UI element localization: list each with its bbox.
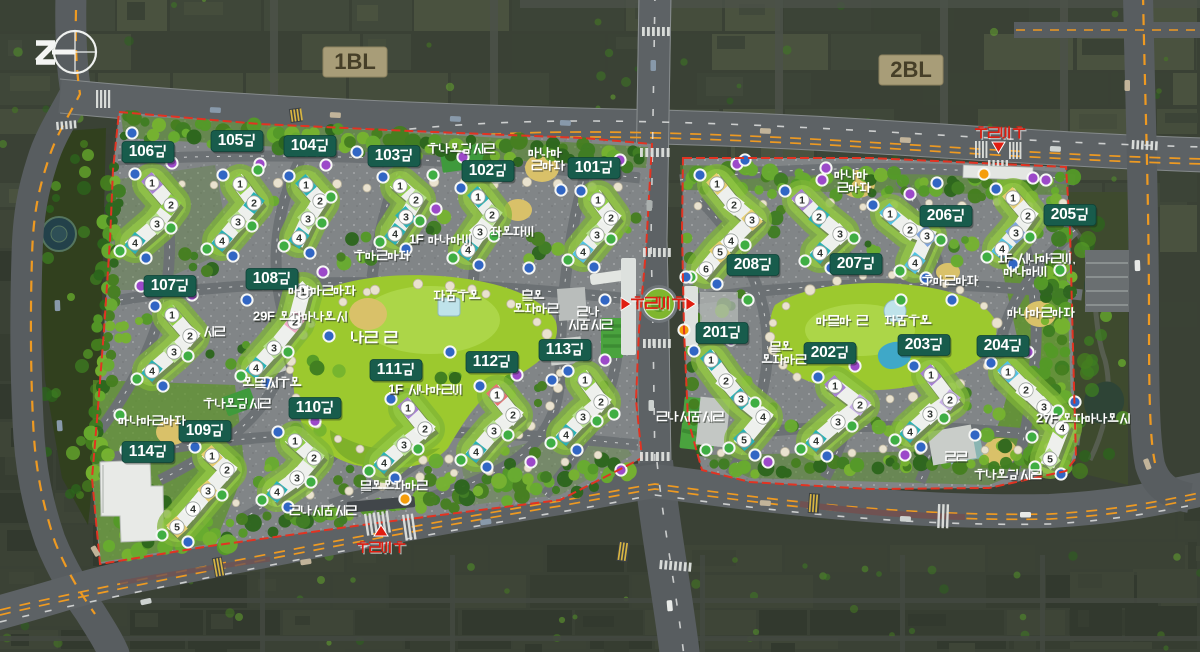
svg-text:2: 2 xyxy=(422,424,428,436)
svg-text:0: 0 xyxy=(383,147,392,164)
svg-text:6: 6 xyxy=(943,207,952,224)
svg-text:3: 3 xyxy=(294,473,300,485)
svg-text:0: 0 xyxy=(194,422,203,439)
svg-text:3: 3 xyxy=(738,394,744,406)
svg-text:3: 3 xyxy=(305,214,311,226)
svg-text:0: 0 xyxy=(1059,206,1068,223)
svg-text:2: 2 xyxy=(811,344,820,361)
svg-text:0: 0 xyxy=(845,255,854,272)
svg-text:1: 1 xyxy=(928,370,934,382)
svg-text:2: 2 xyxy=(413,195,419,207)
svg-text:3: 3 xyxy=(835,417,841,429)
svg-text:4: 4 xyxy=(760,412,766,424)
svg-text:1: 1 xyxy=(292,436,298,448)
svg-text:2: 2 xyxy=(984,337,993,354)
svg-text:1: 1 xyxy=(397,181,403,193)
svg-text:2: 2 xyxy=(837,255,846,272)
svg-text:2: 2 xyxy=(251,198,257,210)
svg-text:0: 0 xyxy=(137,143,146,160)
svg-text:0: 0 xyxy=(819,344,828,361)
svg-text:4: 4 xyxy=(813,436,819,448)
svg-text:1: 1 xyxy=(591,159,600,176)
svg-text:F: F xyxy=(416,232,424,247)
svg-text:4: 4 xyxy=(274,487,280,499)
svg-text:1: 1 xyxy=(832,381,838,393)
svg-text:5: 5 xyxy=(717,247,723,259)
svg-text:0: 0 xyxy=(935,207,944,224)
svg-text:4: 4 xyxy=(149,366,155,378)
svg-text:8: 8 xyxy=(750,256,759,273)
svg-text:2: 2 xyxy=(947,395,953,407)
svg-text:0: 0 xyxy=(583,159,592,176)
svg-text:1: 1 xyxy=(237,179,243,191)
svg-text:2: 2 xyxy=(489,210,495,222)
svg-text:1: 1 xyxy=(149,178,155,190)
svg-text:1: 1 xyxy=(475,192,481,204)
svg-text:4: 4 xyxy=(190,504,196,516)
svg-text:0: 0 xyxy=(226,132,235,149)
svg-text:8: 8 xyxy=(269,270,278,287)
svg-text:4: 4 xyxy=(307,137,316,154)
svg-text:2: 2 xyxy=(1023,385,1029,397)
svg-text:1: 1 xyxy=(303,180,309,192)
svg-text:6: 6 xyxy=(145,143,154,160)
svg-text:3: 3 xyxy=(921,336,930,353)
svg-text:3: 3 xyxy=(477,227,483,239)
svg-text:6: 6 xyxy=(703,264,709,276)
svg-text:0: 0 xyxy=(299,137,308,154)
svg-text:4: 4 xyxy=(817,248,823,260)
svg-text:0: 0 xyxy=(711,324,720,341)
svg-text:2BL: 2BL xyxy=(890,57,932,82)
svg-text:3: 3 xyxy=(391,147,400,164)
svg-text:1: 1 xyxy=(887,209,893,221)
svg-text:2: 2 xyxy=(485,162,494,179)
svg-text:2: 2 xyxy=(723,376,729,388)
svg-text:1: 1 xyxy=(209,451,215,463)
svg-text:3: 3 xyxy=(837,229,843,241)
svg-text:1: 1 xyxy=(714,179,720,191)
svg-text:2: 2 xyxy=(827,344,836,361)
svg-text:3: 3 xyxy=(580,412,586,424)
svg-text:3: 3 xyxy=(171,347,177,359)
svg-text:4: 4 xyxy=(392,229,398,241)
svg-text:1: 1 xyxy=(799,195,805,207)
svg-text:2: 2 xyxy=(907,225,913,237)
svg-text:1: 1 xyxy=(582,375,588,387)
svg-text:3: 3 xyxy=(594,230,600,242)
svg-text:2: 2 xyxy=(311,453,317,465)
svg-text:2: 2 xyxy=(1025,211,1031,223)
svg-text:2: 2 xyxy=(703,324,712,341)
svg-text:5: 5 xyxy=(174,522,180,534)
svg-text:2: 2 xyxy=(510,410,516,422)
svg-text:4: 4 xyxy=(253,363,259,375)
svg-text:0: 0 xyxy=(477,162,486,179)
svg-text:3: 3 xyxy=(562,341,571,358)
svg-text:4: 4 xyxy=(145,443,154,460)
svg-text:3: 3 xyxy=(1013,228,1019,240)
svg-text:2: 2 xyxy=(734,256,743,273)
svg-text:4: 4 xyxy=(132,238,138,250)
svg-text:3: 3 xyxy=(924,231,930,243)
svg-text:0: 0 xyxy=(312,399,321,416)
svg-text:5: 5 xyxy=(1067,206,1076,223)
svg-text:2: 2 xyxy=(816,212,822,224)
svg-text:4: 4 xyxy=(563,430,569,442)
svg-text:3: 3 xyxy=(491,426,497,438)
svg-text:1: 1 xyxy=(719,324,728,341)
svg-text:0: 0 xyxy=(742,256,751,273)
svg-text:4: 4 xyxy=(728,236,734,248)
svg-text:4: 4 xyxy=(219,236,225,248)
svg-text:F: F xyxy=(395,382,403,397)
svg-text:2: 2 xyxy=(168,200,174,212)
svg-text:7: 7 xyxy=(167,277,176,294)
svg-text:1: 1 xyxy=(1005,367,1011,379)
svg-text:5: 5 xyxy=(1047,454,1053,466)
svg-text:0: 0 xyxy=(261,270,270,287)
svg-text:7: 7 xyxy=(853,255,862,272)
svg-text:1: 1 xyxy=(393,361,402,378)
svg-text:2: 2 xyxy=(489,353,498,370)
svg-text:F: F xyxy=(1050,411,1058,426)
svg-text:1: 1 xyxy=(405,403,411,415)
svg-text:9: 9 xyxy=(202,422,211,439)
svg-text:4: 4 xyxy=(907,427,913,439)
svg-text:5: 5 xyxy=(741,435,747,447)
svg-text:2: 2 xyxy=(317,196,323,208)
svg-text:1: 1 xyxy=(708,355,714,367)
svg-text:5: 5 xyxy=(234,132,243,149)
svg-text:3: 3 xyxy=(154,219,160,231)
svg-text:2: 2 xyxy=(927,207,936,224)
svg-text:2: 2 xyxy=(608,213,614,225)
svg-text:2: 2 xyxy=(187,331,193,343)
svg-text:4: 4 xyxy=(473,447,479,459)
svg-text:4: 4 xyxy=(580,247,586,259)
svg-text:3: 3 xyxy=(205,486,211,498)
svg-text:0: 0 xyxy=(159,277,168,294)
svg-text:1: 1 xyxy=(1010,193,1016,205)
svg-text:1: 1 xyxy=(169,310,175,322)
svg-text:3: 3 xyxy=(403,212,409,224)
svg-text:1BL: 1BL xyxy=(334,49,376,74)
svg-text:2: 2 xyxy=(224,465,230,477)
svg-text:3: 3 xyxy=(271,343,277,355)
svg-text:4: 4 xyxy=(1000,337,1009,354)
svg-text:2: 2 xyxy=(598,397,604,409)
svg-text:0: 0 xyxy=(913,336,922,353)
svg-text:F: F xyxy=(1004,251,1012,266)
svg-text:3: 3 xyxy=(235,217,241,229)
svg-text:2: 2 xyxy=(857,400,863,412)
svg-text:1: 1 xyxy=(494,390,500,402)
svg-text:4: 4 xyxy=(296,233,302,245)
svg-text:4: 4 xyxy=(1059,423,1065,435)
svg-text:2: 2 xyxy=(905,336,914,353)
svg-text:1: 1 xyxy=(595,195,601,207)
svg-text:0: 0 xyxy=(992,337,1001,354)
svg-text:3: 3 xyxy=(401,440,407,452)
svg-text:2: 2 xyxy=(1051,206,1060,223)
svg-text:4: 4 xyxy=(912,258,918,270)
svg-text:4: 4 xyxy=(465,245,471,257)
svg-text:F: F xyxy=(267,309,275,324)
svg-text:3: 3 xyxy=(927,409,933,421)
svg-text:3: 3 xyxy=(749,215,755,227)
svg-text:4: 4 xyxy=(381,458,387,470)
svg-text:2: 2 xyxy=(731,200,737,212)
